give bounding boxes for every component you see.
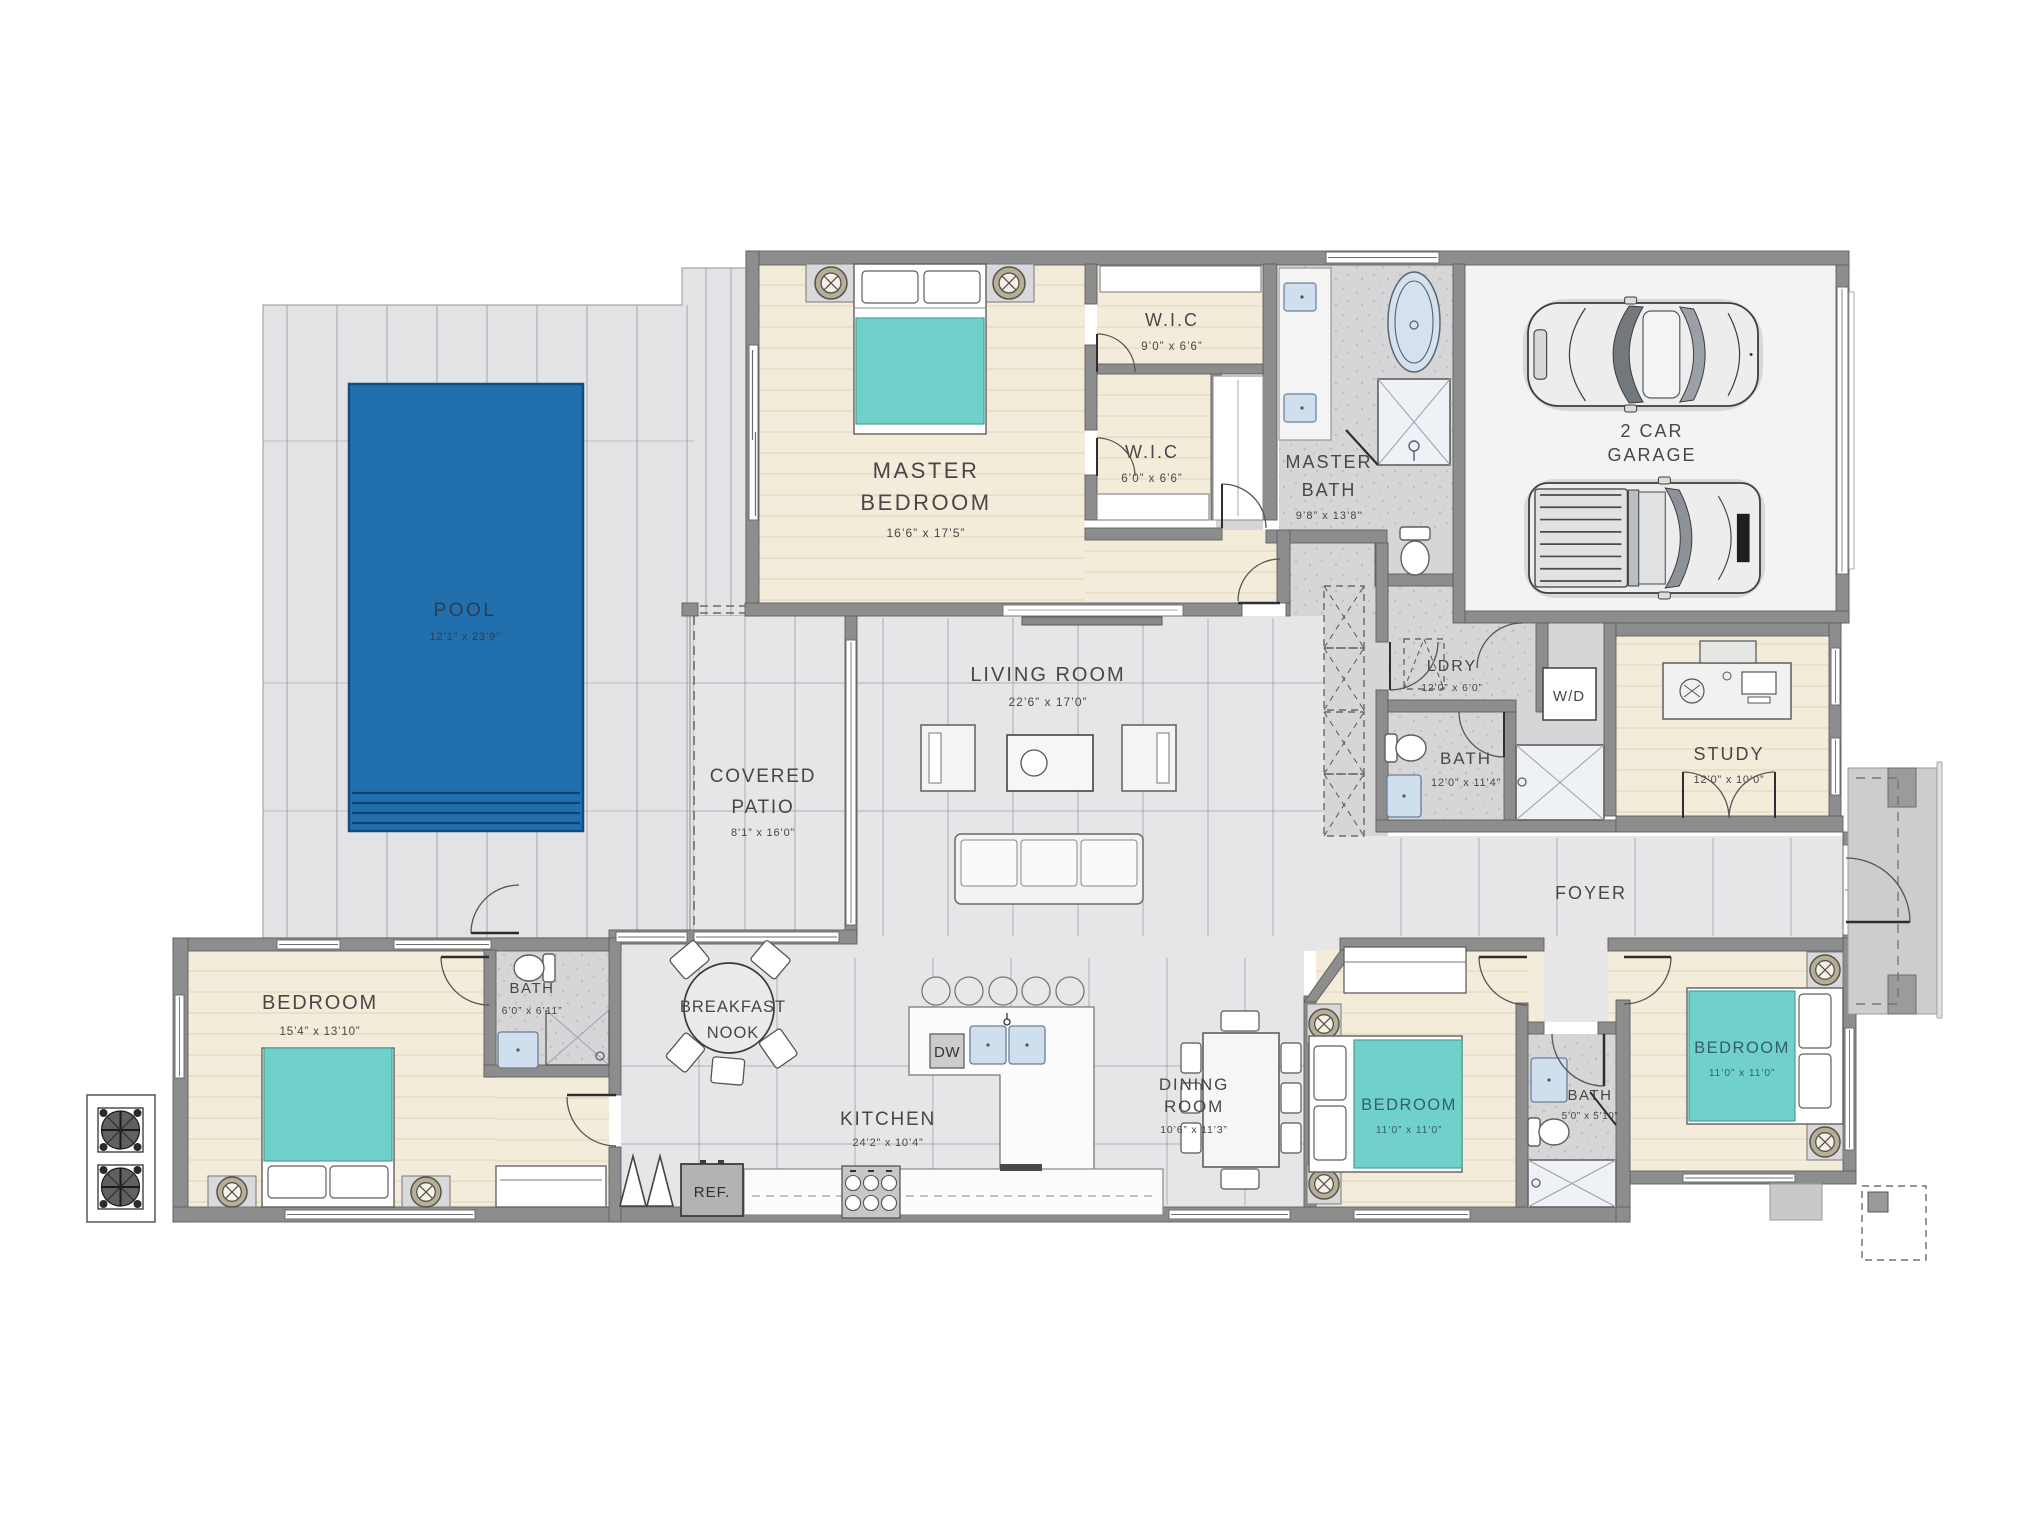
svg-text:GARAGE: GARAGE <box>1607 445 1696 465</box>
svg-text:BEDROOM: BEDROOM <box>1361 1096 1457 1114</box>
svg-text:PATIO: PATIO <box>731 797 794 818</box>
svg-text:BEDROOM: BEDROOM <box>860 490 991 515</box>
svg-text:2 CAR: 2 CAR <box>1620 421 1683 441</box>
svg-text:12’0” x 11’4”: 12’0” x 11’4” <box>1431 777 1501 789</box>
svg-text:W/D: W/D <box>1553 688 1585 705</box>
svg-text:BATH: BATH <box>510 980 555 997</box>
svg-text:NOOK: NOOK <box>707 1024 760 1042</box>
svg-text:REF.: REF. <box>694 1184 731 1201</box>
svg-text:6’0” x 6’11”: 6’0” x 6’11” <box>502 1005 563 1017</box>
svg-text:ROOM: ROOM <box>1164 1097 1224 1116</box>
svg-text:11’0” x 11’0”: 11’0” x 11’0” <box>1376 1124 1443 1136</box>
svg-text:16’6” x 17’5”: 16’6” x 17’5” <box>886 526 965 540</box>
svg-text:W.I.C: W.I.C <box>1145 310 1199 330</box>
svg-text:POOL: POOL <box>434 600 497 621</box>
svg-text:8’1” x 16’0”: 8’1” x 16’0” <box>731 827 795 839</box>
svg-text:BEDROOM: BEDROOM <box>262 992 378 1014</box>
svg-text:12’0” x 6’0”: 12’0” x 6’0” <box>1421 682 1483 694</box>
svg-text:DINING: DINING <box>1159 1075 1229 1094</box>
svg-text:BREAKFAST: BREAKFAST <box>680 998 786 1016</box>
svg-text:22’6” x 17’0”: 22’6” x 17’0” <box>1008 695 1087 709</box>
svg-text:BATH: BATH <box>1568 1087 1613 1104</box>
svg-text:MASTER: MASTER <box>873 458 980 483</box>
svg-text:KITCHEN: KITCHEN <box>840 1109 936 1130</box>
svg-text:10’6” x 11’3”: 10’6” x 11’3” <box>1160 1124 1227 1136</box>
svg-text:12’1” x 23’9”: 12’1” x 23’9” <box>430 631 501 643</box>
svg-text:DW: DW <box>934 1044 960 1061</box>
svg-text:STUDY: STUDY <box>1693 744 1764 764</box>
svg-text:11’0” x 11’0”: 11’0” x 11’0” <box>1709 1067 1776 1079</box>
svg-text:6’0” x 6’6”: 6’0” x 6’6” <box>1121 473 1183 485</box>
svg-text:LIVING ROOM: LIVING ROOM <box>970 664 1125 686</box>
svg-text:COVERED: COVERED <box>710 766 817 787</box>
svg-text:12’0” x 10’0”: 12’0” x 10’0” <box>1694 774 1765 786</box>
svg-text:BEDROOM: BEDROOM <box>1694 1039 1790 1057</box>
svg-text:BATH: BATH <box>1302 480 1357 500</box>
svg-text:15’4” x 13’10”: 15’4” x 13’10” <box>280 1026 361 1038</box>
svg-text:9’0” x 6’6”: 9’0” x 6’6” <box>1141 341 1203 353</box>
svg-text:W.I.C: W.I.C <box>1125 442 1179 462</box>
svg-text:FOYER: FOYER <box>1555 883 1627 903</box>
svg-text:9’8” x 13’8”: 9’8” x 13’8” <box>1296 510 1362 522</box>
svg-text:MASTER: MASTER <box>1285 452 1372 472</box>
svg-text:24’2” x 10’4”: 24’2” x 10’4” <box>853 1137 924 1149</box>
